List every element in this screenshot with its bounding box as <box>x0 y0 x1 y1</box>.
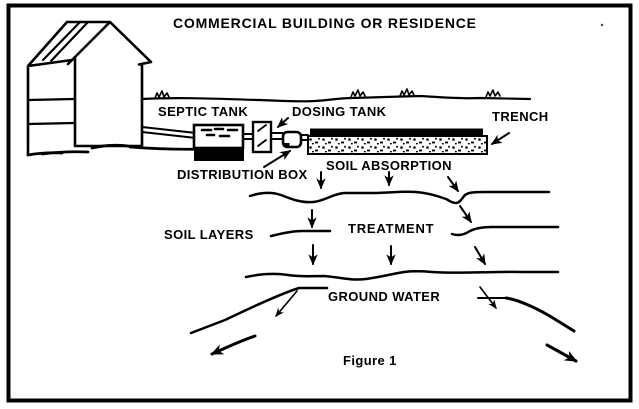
trench-gravel <box>308 136 487 154</box>
stray-mark <box>601 24 603 26</box>
groundwater-flow-right <box>478 287 576 361</box>
ground-water-label: GROUND WATER <box>328 290 440 305</box>
flow-arrow-left-large <box>212 336 255 354</box>
septic-tank-drawing <box>194 125 244 161</box>
flow-slope-line-right <box>506 298 574 331</box>
dosing-tank-pointer-arrow <box>278 118 288 127</box>
figure-title: COMMERCIAL BUILDING OR RESIDENCE <box>173 15 477 31</box>
soil-layer-line-right <box>452 227 558 235</box>
grass-tuft <box>155 91 169 98</box>
distribution-box-label: DISTRIBUTION BOX <box>177 168 308 183</box>
trench-drawing <box>308 129 487 155</box>
distribution-box-drawing <box>283 132 301 147</box>
trench-label: TRENCH <box>492 110 549 125</box>
figure-canvas: COMMERCIAL BUILDING OR RESIDENCE SEPTIC … <box>0 0 639 409</box>
treatment-label: TREATMENT <box>348 222 434 237</box>
soil-absorption-label: SOIL ABSORPTION <box>326 159 452 174</box>
soil-absorption-line <box>250 192 549 203</box>
ground-water-line <box>246 271 558 279</box>
figure-caption: Figure 1 <box>343 354 397 369</box>
flow-slope-line-left <box>191 288 327 333</box>
grass-tuft <box>486 90 500 97</box>
trench-cover-bar <box>310 129 483 138</box>
trench-pointer-arrow <box>492 133 509 144</box>
wall-division-lines <box>28 99 75 124</box>
dosing-tank-label: DOSING TANK <box>292 105 386 120</box>
house-outline <box>28 22 151 155</box>
groundwater-flow-left <box>191 288 327 354</box>
septic-tank-base <box>194 147 244 161</box>
distribution-box-pointer-arrow <box>264 151 290 167</box>
percolation-arrows <box>312 172 485 264</box>
distribution-box-notch <box>284 143 290 147</box>
septic-system-diagram <box>0 0 639 409</box>
building-drawing <box>28 22 207 155</box>
ground-surface <box>142 89 530 101</box>
soil-layers-label: SOIL LAYERS <box>164 228 254 243</box>
ground-line <box>142 96 530 101</box>
treatment-arrow-2 <box>460 206 471 222</box>
figure-border <box>9 6 631 401</box>
soil-layer-line-left <box>271 231 330 236</box>
flow-arrow-right-large <box>547 345 576 361</box>
grass-tuft <box>351 90 365 97</box>
groundwater-arrow-3 <box>475 247 485 264</box>
grass-tuft <box>400 89 414 96</box>
septic-tank-label: SEPTIC TANK <box>158 105 248 120</box>
absorption-arrow-3 <box>448 177 458 191</box>
dosing-tank-drawing <box>253 122 271 152</box>
dosing-tank-box <box>253 122 271 152</box>
